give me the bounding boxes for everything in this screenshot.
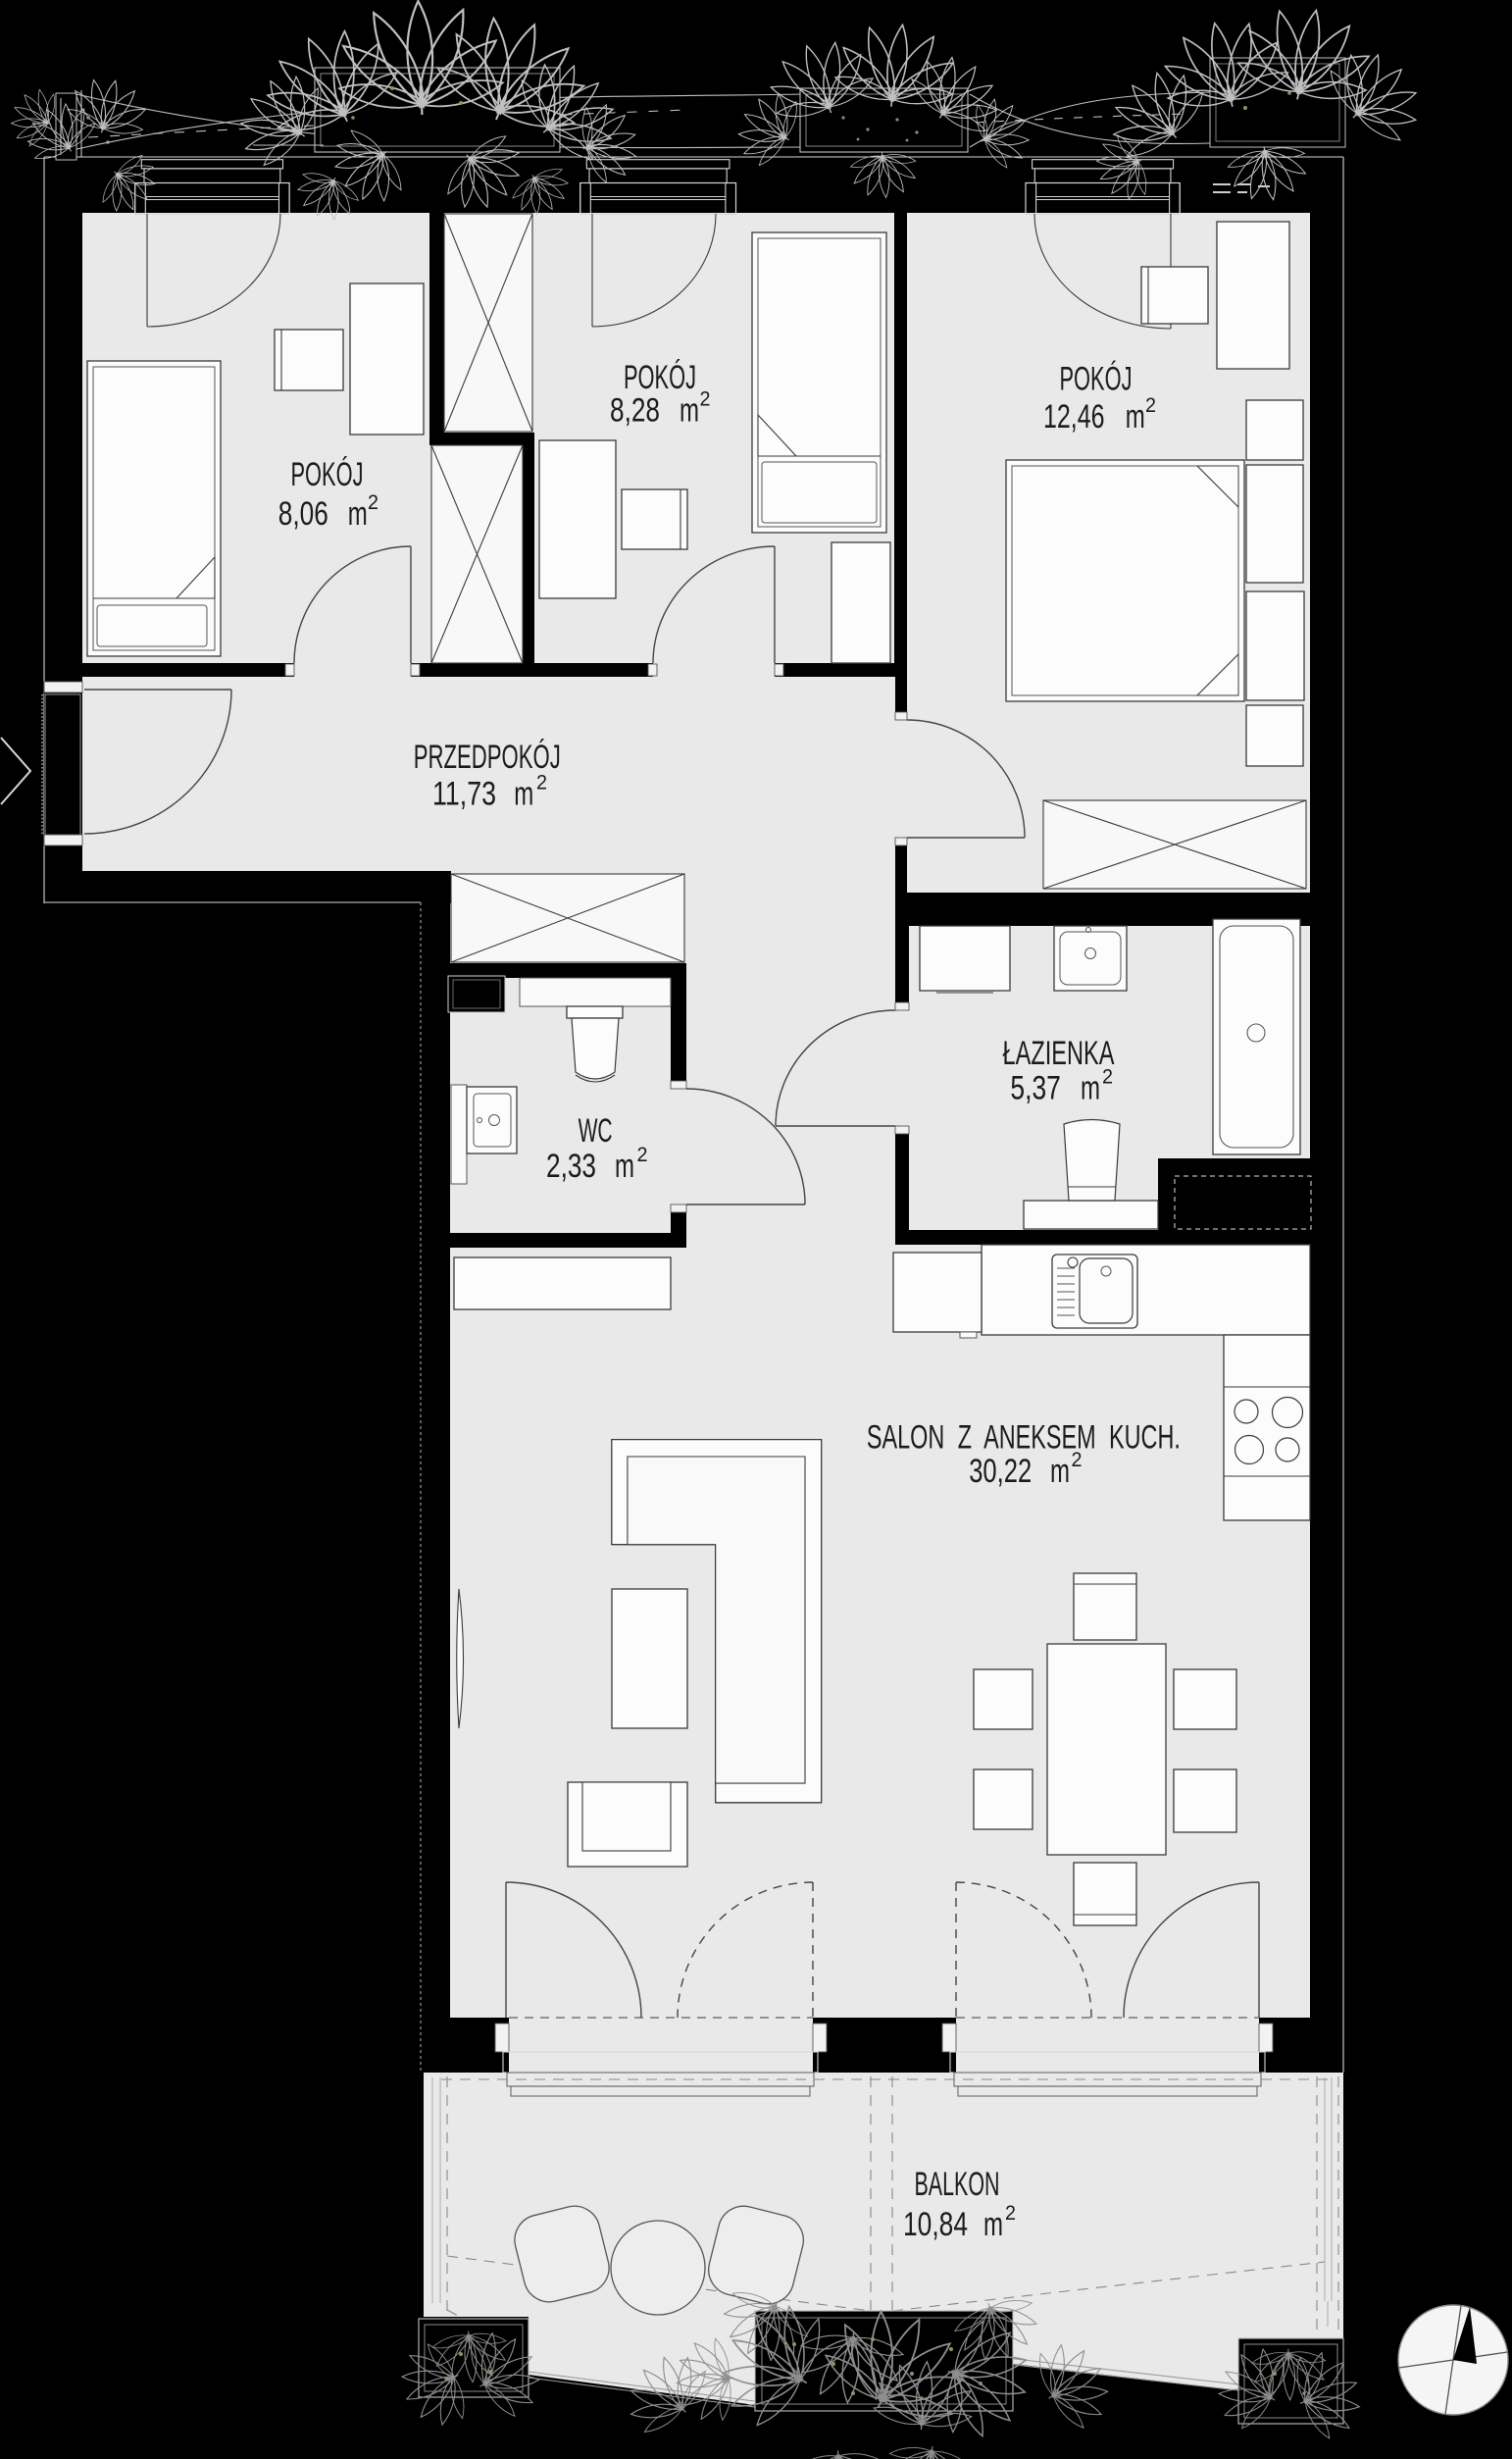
svg-text:2: 2	[1102, 1066, 1113, 1089]
svg-text:POKÓJ: POKÓJ	[1060, 361, 1133, 398]
svg-text:2: 2	[1072, 1449, 1083, 1471]
svg-text:2: 2	[536, 772, 547, 794]
svg-text:BALKON: BALKON	[915, 2166, 1000, 2203]
svg-text:m: m	[348, 495, 368, 533]
svg-text:2: 2	[637, 1144, 648, 1166]
svg-text:m: m	[1050, 1453, 1070, 1490]
svg-text:m: m	[1081, 1070, 1100, 1107]
svg-text:2: 2	[700, 388, 711, 411]
svg-text:m: m	[615, 1148, 634, 1185]
svg-text:2,33: 2,33	[546, 1148, 596, 1185]
svg-text:2: 2	[1005, 2202, 1016, 2225]
svg-text:m: m	[514, 776, 533, 813]
svg-text:ŁAZIENKA: ŁAZIENKA	[1003, 1035, 1115, 1072]
svg-text:2: 2	[368, 491, 378, 514]
svg-text:2: 2	[1145, 394, 1156, 417]
svg-text:POKÓJ: POKÓJ	[291, 456, 364, 493]
svg-text:8,28: 8,28	[610, 392, 660, 430]
svg-text:8,06: 8,06	[278, 495, 328, 533]
svg-text:m: m	[1126, 398, 1145, 435]
svg-text:WC: WC	[579, 1112, 613, 1150]
svg-text:POKÓJ: POKÓJ	[624, 359, 696, 396]
svg-text:PRZEDPOKÓJ: PRZEDPOKÓJ	[414, 739, 561, 776]
svg-text:m: m	[680, 392, 699, 430]
svg-text:12,46: 12,46	[1043, 398, 1105, 435]
svg-text:30,22: 30,22	[969, 1453, 1032, 1490]
svg-text:5,37: 5,37	[1010, 1070, 1061, 1107]
svg-text:11,73: 11,73	[432, 776, 496, 813]
svg-text:10,84: 10,84	[903, 2206, 968, 2243]
svg-text:m: m	[983, 2206, 1003, 2243]
svg-text:SALON Z ANEKSEM KUCH.: SALON Z ANEKSEM KUCH.	[867, 1419, 1181, 1457]
